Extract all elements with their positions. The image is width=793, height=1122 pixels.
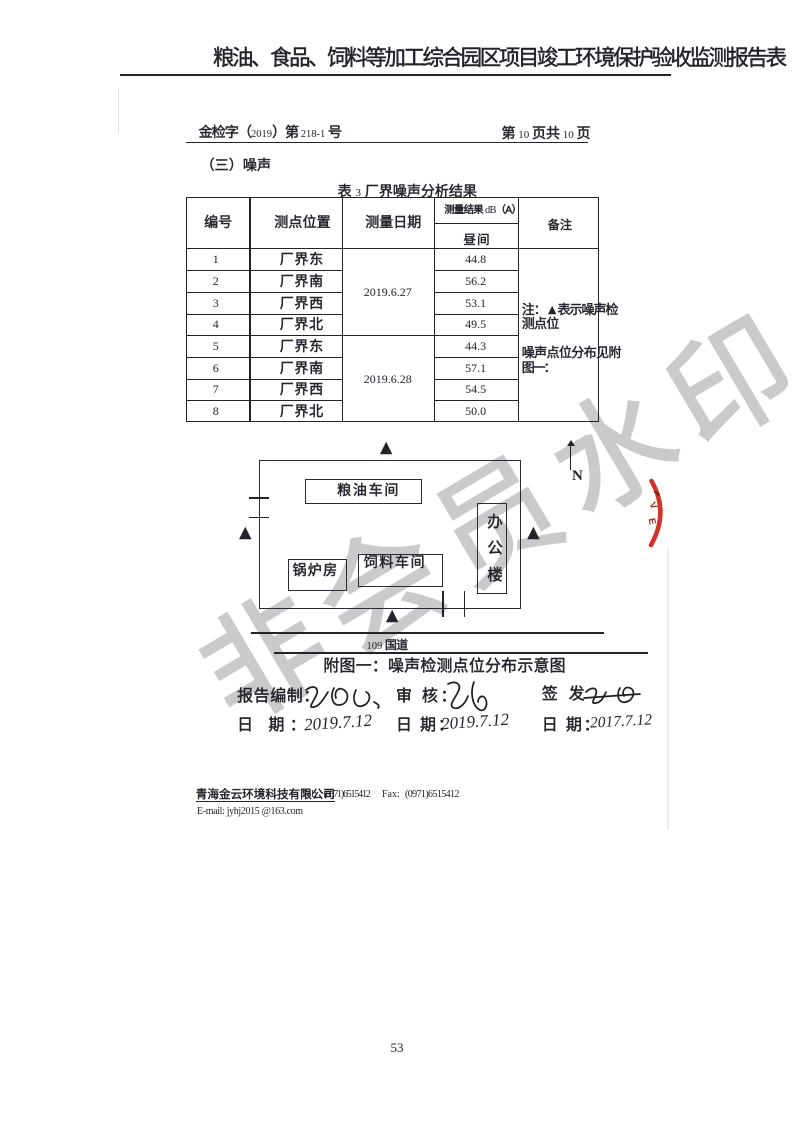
svg-text:E: E: [646, 517, 658, 525]
svg-text:V: V: [646, 501, 659, 512]
